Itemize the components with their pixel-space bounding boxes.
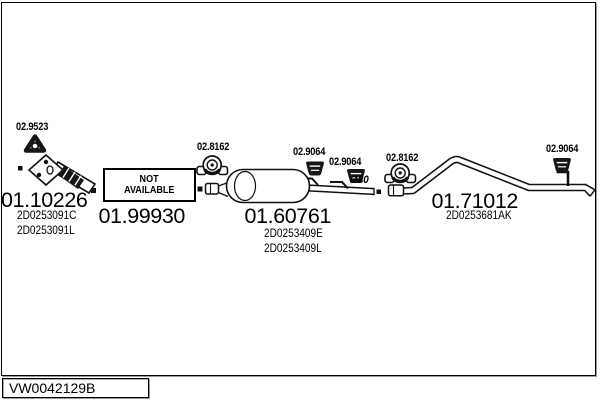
- clamp-icon: [197, 156, 228, 175]
- clamp-part-label: 02.8162: [386, 152, 418, 164]
- catalog-code-box: VW0042129B: [2, 378, 149, 398]
- silencer-inlet-sleeve: [206, 184, 219, 195]
- flange: [29, 155, 63, 185]
- rear-sleeve: [389, 185, 404, 196]
- not-available-box: NOT AVAILABLE: [103, 168, 196, 202]
- connector-marker: [377, 190, 382, 195]
- part-number-catalyst: 01.99930: [99, 204, 185, 229]
- clamp-icon: [385, 164, 416, 183]
- flange-bolt-hole: [44, 160, 48, 164]
- clamp-part-label: 02.8162: [197, 141, 229, 153]
- oem-code: 2D0253681AK: [446, 208, 512, 222]
- gasket-part-label: 02.9523: [16, 121, 48, 133]
- rubber-mount-icon: [306, 162, 324, 176]
- connector-marker: [18, 166, 23, 171]
- mount-part-label: 02.9064: [546, 143, 578, 155]
- not-available-text: AVAILABLE: [124, 185, 174, 197]
- flange-pipe-hole: [47, 166, 53, 174]
- gasket-hole: [32, 143, 38, 149]
- front-pipe-drawing: [18, 137, 96, 194]
- mount-part-label: 02.9064: [329, 156, 361, 168]
- inlet-taper: [219, 193, 229, 197]
- rubber-mount-icon: [553, 158, 571, 172]
- catalog-code: VW0042129B: [9, 380, 95, 396]
- connector-marker: [91, 188, 96, 193]
- exhaust-parts-diagram: 02.9523 01.10226 2D0253091C 2D0253091L N…: [0, 0, 600, 400]
- connector-marker: [198, 187, 203, 192]
- oem-code: 2D0253091C: [17, 208, 76, 222]
- pipe-diameter-label: Ø80: [350, 174, 369, 186]
- mount-part-label: 02.9064: [293, 146, 325, 158]
- oem-code: 2D0253409L: [264, 241, 322, 255]
- tailpipe-tip: [585, 184, 595, 196]
- oem-code: 2D0253091L: [17, 223, 75, 237]
- oem-code: 2D0253409E: [264, 226, 323, 240]
- part-number-centre-silencer: 01.60761: [245, 204, 331, 229]
- flange-bolt-hole: [37, 173, 41, 177]
